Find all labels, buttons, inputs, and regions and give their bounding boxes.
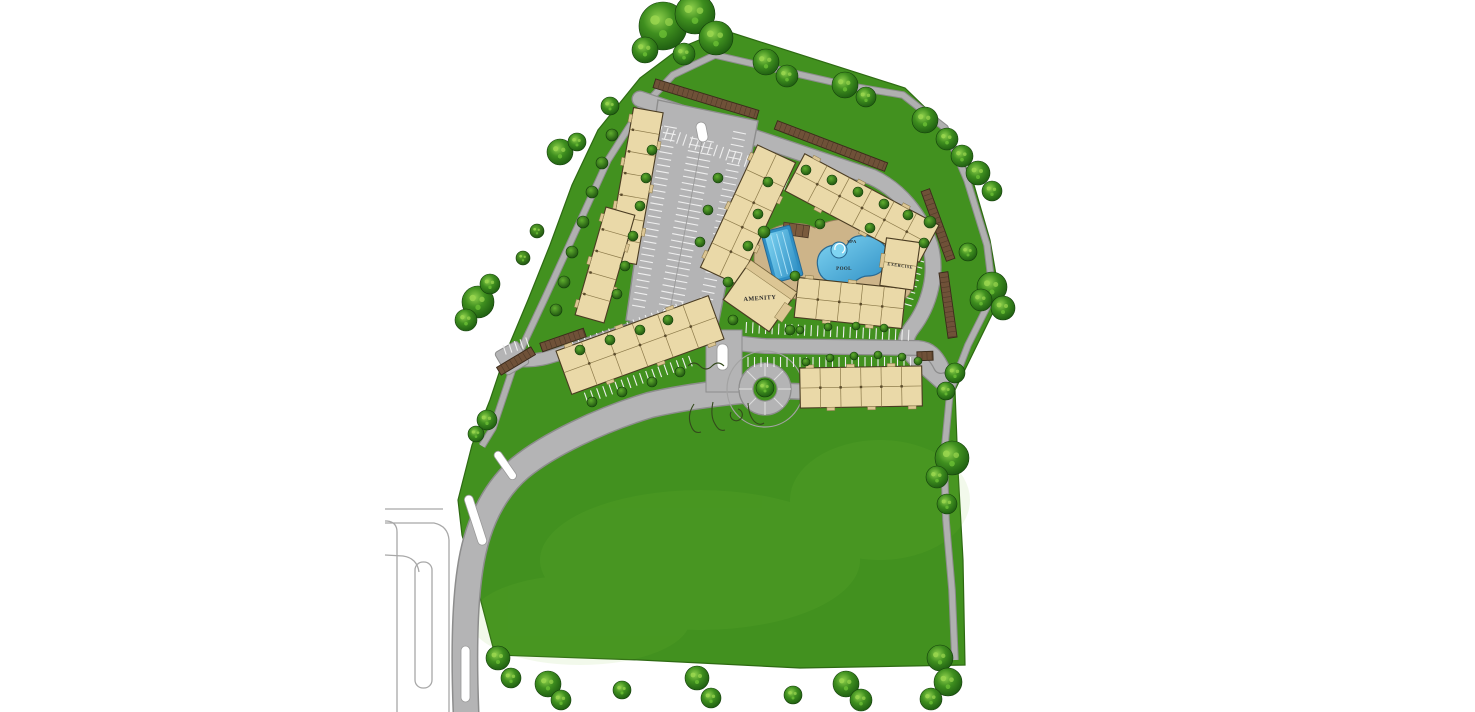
bush <box>620 261 630 271</box>
tree <box>936 128 958 150</box>
tree <box>912 107 938 133</box>
bush <box>815 219 825 229</box>
bush <box>695 237 705 247</box>
tree <box>685 666 709 690</box>
tree <box>945 363 965 383</box>
bush <box>914 357 922 365</box>
bush <box>898 353 906 361</box>
bush <box>790 271 800 281</box>
tree <box>501 668 521 688</box>
bush <box>853 187 863 197</box>
bush <box>612 289 622 299</box>
bush <box>516 251 530 265</box>
bush <box>605 335 615 345</box>
tree <box>991 296 1015 320</box>
tree <box>486 646 510 670</box>
bush <box>827 175 837 185</box>
bush <box>865 223 875 233</box>
bush <box>647 377 657 387</box>
tree <box>951 145 973 167</box>
bush <box>713 173 723 183</box>
bush <box>824 323 832 331</box>
bush <box>919 238 929 248</box>
bush <box>587 397 597 407</box>
bush <box>903 210 913 220</box>
tree <box>673 43 695 65</box>
bush <box>635 325 645 335</box>
bush <box>758 226 770 238</box>
bush <box>550 304 562 316</box>
tree <box>632 37 658 63</box>
tree <box>926 466 948 488</box>
residential-building <box>800 363 923 411</box>
bush <box>723 277 733 287</box>
bush <box>879 199 889 209</box>
tree <box>850 689 872 711</box>
bush <box>663 315 673 325</box>
tree <box>699 21 733 55</box>
bush <box>558 276 570 288</box>
tree <box>753 49 779 75</box>
bush <box>753 209 763 219</box>
bush <box>596 157 608 169</box>
tree <box>455 309 477 331</box>
bush <box>801 165 811 175</box>
tree <box>776 65 798 87</box>
bush <box>628 231 638 241</box>
bush <box>575 345 585 355</box>
tree <box>937 382 955 400</box>
bush <box>606 129 618 141</box>
tree <box>937 494 957 514</box>
tree <box>970 289 992 311</box>
bush <box>874 351 882 359</box>
tree <box>856 87 876 107</box>
tree <box>701 688 721 708</box>
tree <box>601 97 619 115</box>
bush <box>728 315 738 325</box>
bush <box>617 387 627 397</box>
tree <box>468 426 484 442</box>
tree <box>551 690 571 710</box>
tree <box>927 645 953 671</box>
tree <box>784 686 802 704</box>
bush <box>586 186 598 198</box>
spa-label: SPA <box>847 239 857 244</box>
site-plan-canvas: AMENITY POOL SPA EXERCISE <box>0 0 1475 712</box>
tree <box>480 274 500 294</box>
bush <box>802 358 810 366</box>
bush <box>703 205 713 215</box>
bush <box>530 224 544 238</box>
bush <box>647 145 657 155</box>
tree <box>832 72 858 98</box>
bush <box>850 352 858 360</box>
tree <box>568 133 586 151</box>
bush <box>826 354 834 362</box>
bush <box>635 201 645 211</box>
pool-label: POOL <box>836 267 852 272</box>
bush <box>785 325 795 335</box>
bush <box>641 173 651 183</box>
bush <box>743 241 753 251</box>
bush <box>577 216 589 228</box>
connector-median <box>717 344 728 370</box>
bush <box>566 246 578 258</box>
bush <box>852 322 860 330</box>
tree <box>613 681 631 699</box>
tree <box>982 181 1002 201</box>
tree <box>756 379 774 397</box>
tree <box>959 243 977 261</box>
tree <box>966 161 990 185</box>
tree <box>920 688 942 710</box>
bush <box>796 326 804 334</box>
bush <box>924 216 936 228</box>
bush <box>763 177 773 187</box>
bush <box>675 367 685 377</box>
bush <box>880 324 888 332</box>
